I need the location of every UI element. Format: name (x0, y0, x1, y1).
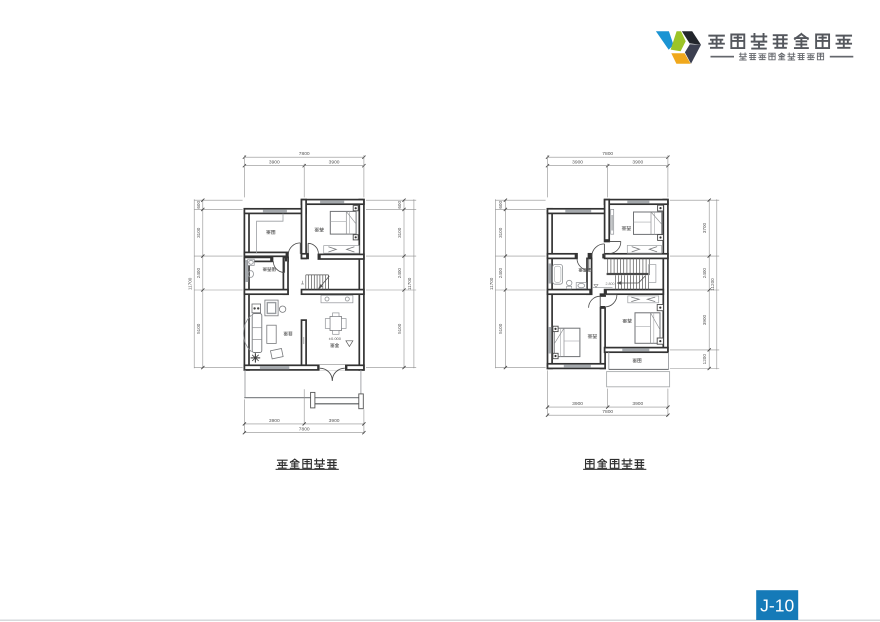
svg-text:5100: 5100 (196, 323, 201, 334)
svg-text:11700: 11700 (407, 277, 412, 290)
svg-text:600: 600 (196, 201, 201, 209)
svg-text:2400: 2400 (196, 268, 201, 279)
svg-text:5100: 5100 (498, 323, 503, 334)
svg-text:J-10: J-10 (760, 596, 794, 616)
svg-text:2.800: 2.800 (606, 282, 615, 286)
svg-text:3100: 3100 (397, 227, 402, 238)
svg-text:3700: 3700 (702, 222, 707, 233)
svg-text:3100: 3100 (498, 227, 503, 238)
svg-text:3900: 3900 (329, 418, 340, 424)
svg-text:3900: 3900 (269, 418, 280, 424)
svg-text:1200: 1200 (702, 354, 707, 365)
svg-text:7800: 7800 (299, 151, 310, 157)
svg-text:600: 600 (397, 201, 402, 209)
svg-text:3900: 3900 (572, 159, 583, 165)
svg-text:7800: 7800 (299, 427, 310, 433)
svg-text:7800: 7800 (602, 151, 613, 157)
svg-text:3900: 3900 (572, 401, 583, 407)
svg-text:7800: 7800 (602, 409, 613, 415)
svg-text:3900: 3900 (702, 314, 707, 325)
svg-text:3900: 3900 (632, 401, 643, 407)
svg-text:3900: 3900 (329, 159, 340, 165)
svg-text:2400: 2400 (702, 268, 707, 279)
svg-text:3900: 3900 (632, 159, 643, 165)
svg-text:5100: 5100 (397, 323, 402, 334)
svg-text:11200: 11200 (710, 278, 715, 291)
svg-text:±0.000: ±0.000 (329, 336, 342, 341)
svg-text:3100: 3100 (196, 227, 201, 238)
svg-text:3900: 3900 (269, 159, 280, 165)
svg-text:600: 600 (498, 201, 503, 209)
svg-text:11700: 11700 (188, 277, 193, 290)
svg-text:11700: 11700 (489, 277, 494, 290)
svg-text:2400: 2400 (397, 268, 402, 279)
svg-text:2400: 2400 (498, 268, 503, 279)
